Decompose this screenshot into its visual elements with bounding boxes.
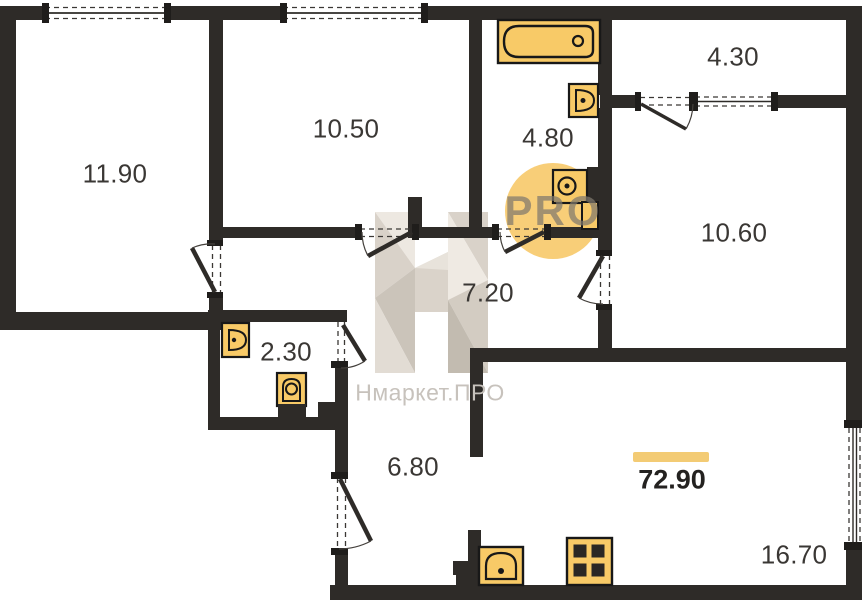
door-swing-icon <box>331 322 365 368</box>
room-area-label: 10.50 <box>313 114 380 145</box>
room-area-label: 10.60 <box>701 218 768 249</box>
toilet-icon <box>569 84 598 117</box>
total-area-label: 72.90 <box>638 465 706 496</box>
toilet-icon <box>277 373 335 418</box>
window-icon <box>280 3 428 23</box>
room-area-label: 16.70 <box>761 540 828 571</box>
room-area-label: 2.30 <box>260 337 312 368</box>
stove-icon <box>567 538 612 585</box>
room-area-label: 11.90 <box>83 159 148 190</box>
window-icon <box>42 3 171 23</box>
room-area-label: 4.30 <box>707 42 759 73</box>
doors <box>192 92 695 555</box>
room-area-label: 4.80 <box>522 123 574 154</box>
kitchen-sink-icon <box>479 547 523 585</box>
room-area-label: 7.20 <box>462 278 514 309</box>
door-swing-icon <box>635 92 695 129</box>
total-area-underline <box>633 452 709 462</box>
door-swing-icon <box>331 472 371 555</box>
room-area-label: 6.80 <box>387 452 439 483</box>
floorplan: 11.90 10.50 4.80 4.30 10.60 7.20 2.30 6.… <box>0 0 862 600</box>
watermark-brand-text: Нмаркет.ПРО <box>355 380 505 407</box>
pro-badge-text: PRO <box>504 187 601 235</box>
window-icon <box>691 92 778 111</box>
window-icon <box>844 420 862 550</box>
sink-icon <box>222 323 249 357</box>
bathtub-icon <box>498 20 600 63</box>
door-swing-icon <box>192 240 223 298</box>
floorplan-drawing <box>0 0 862 600</box>
door-swing-icon <box>579 250 612 310</box>
